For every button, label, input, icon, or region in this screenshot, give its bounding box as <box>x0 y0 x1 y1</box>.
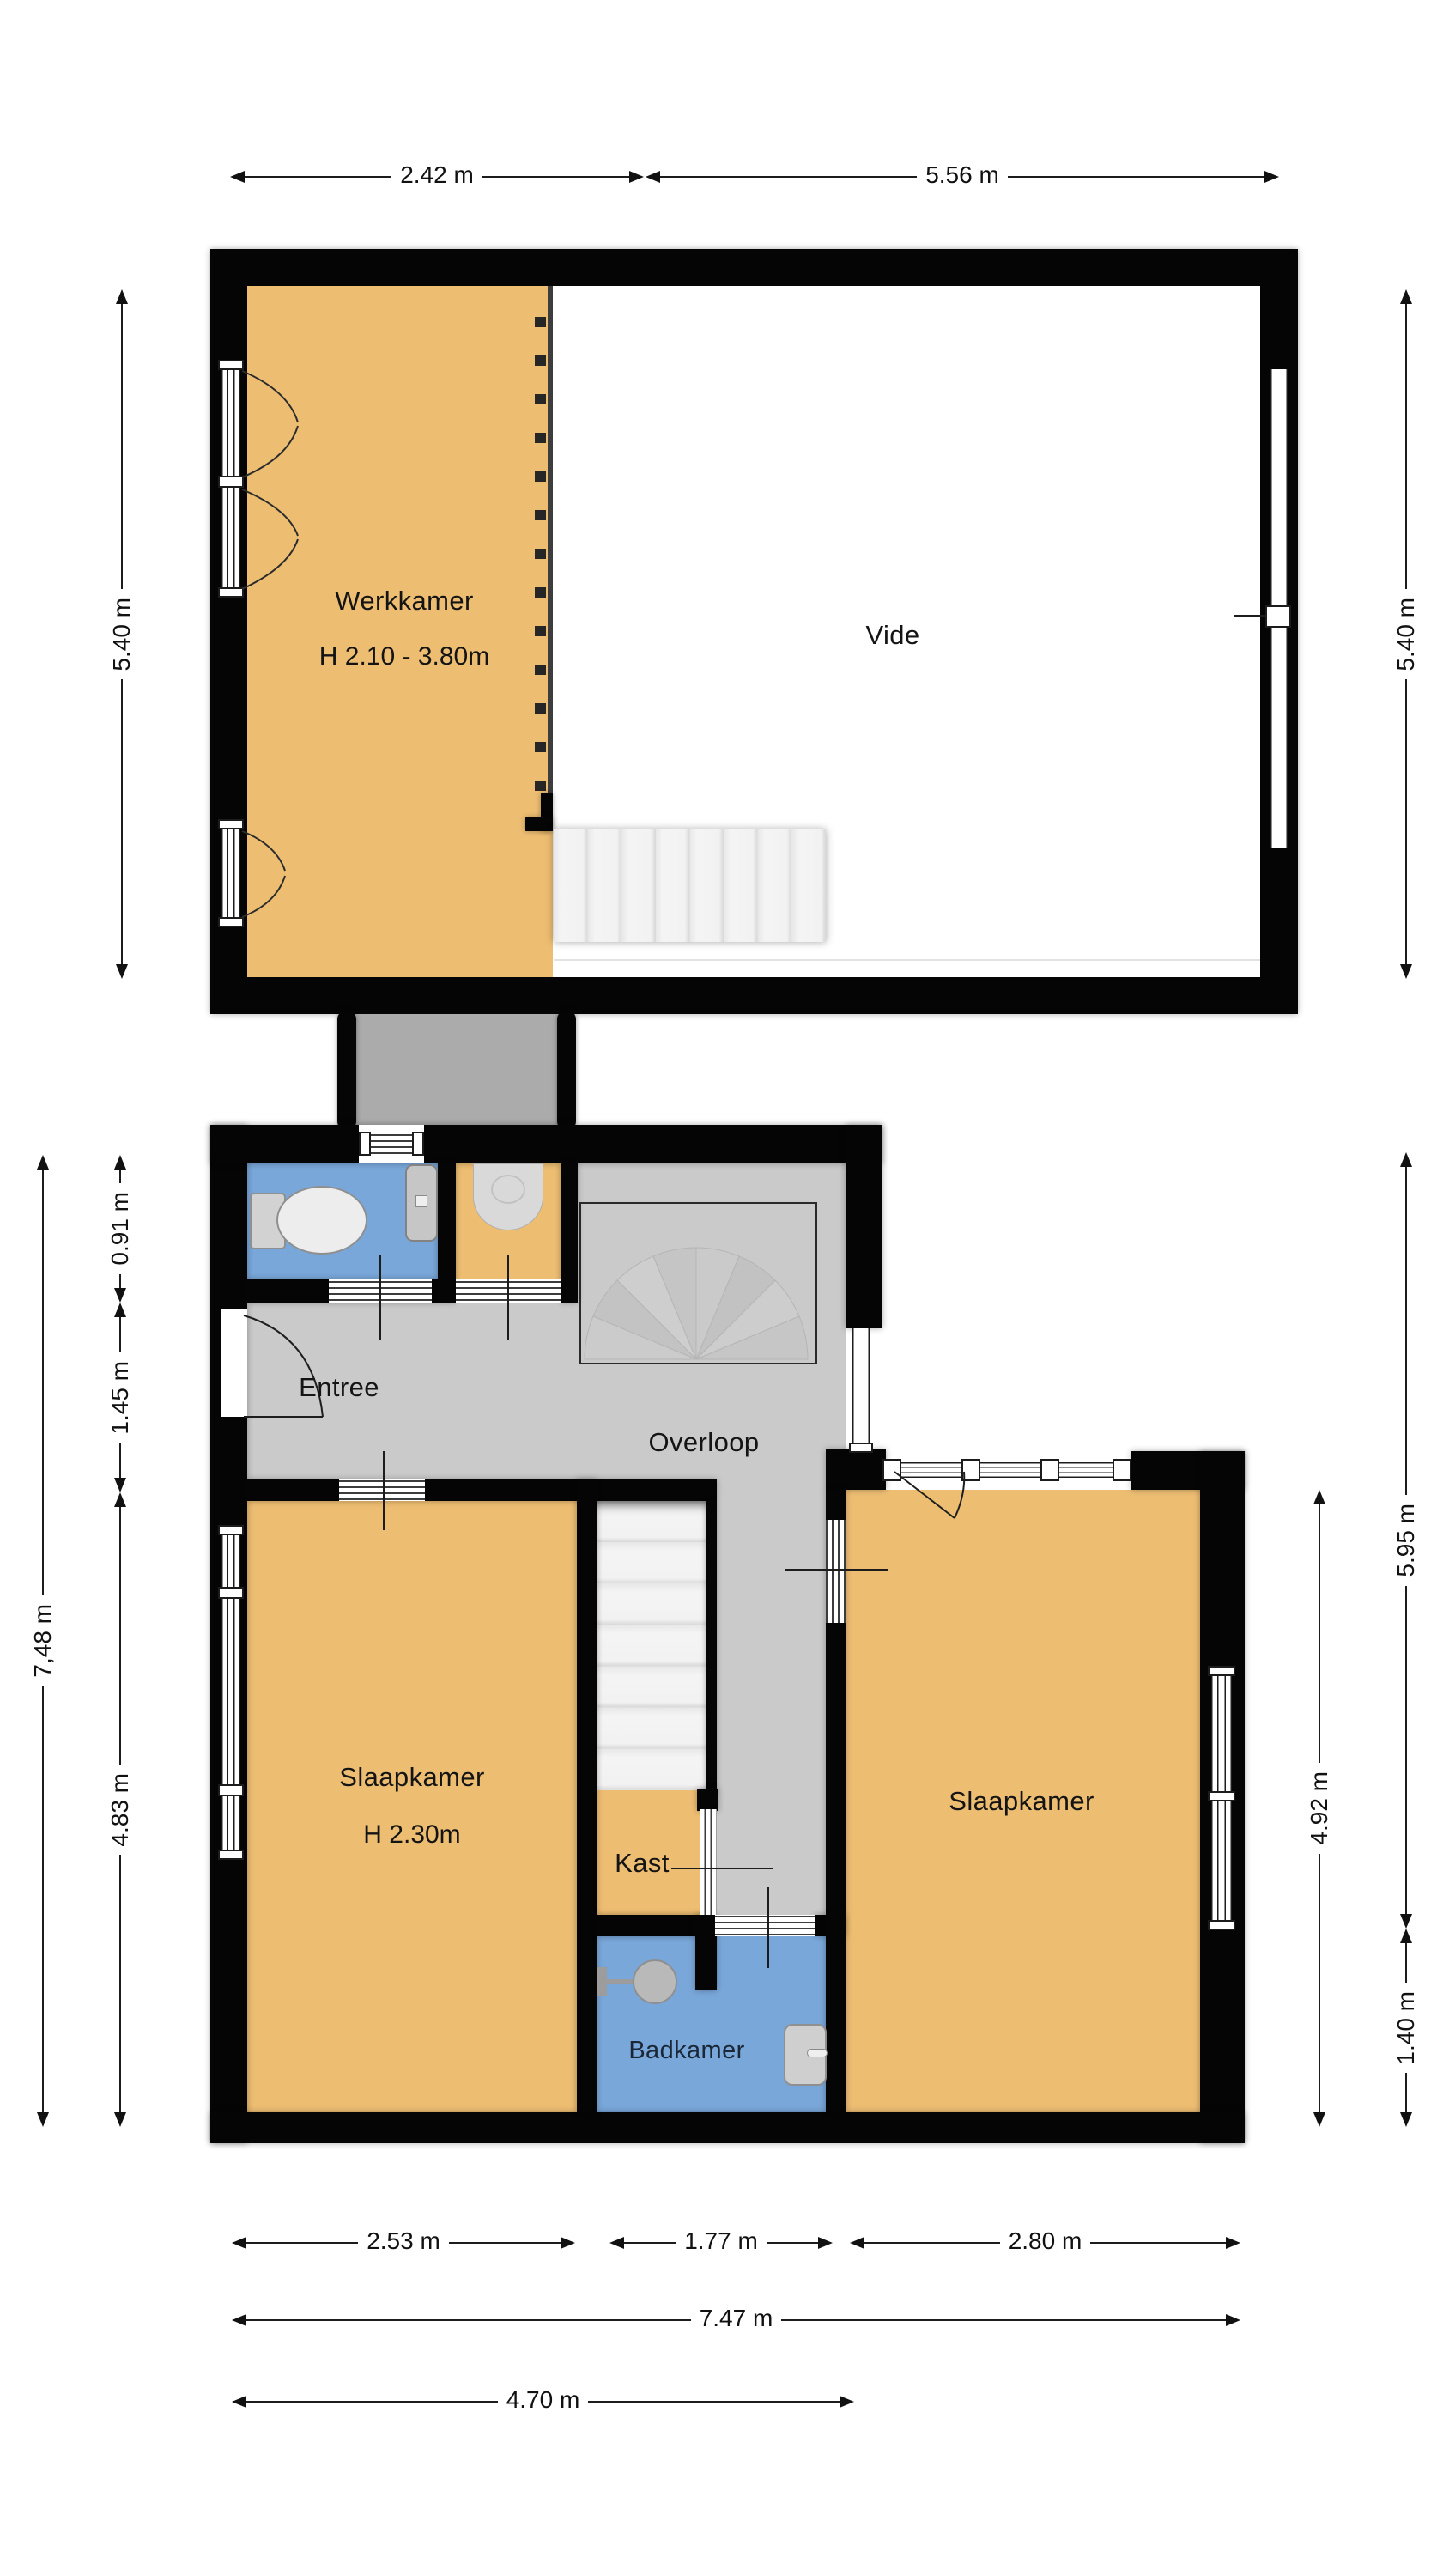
room-label-badkamer: Badkamer <box>567 2037 807 2065</box>
dim-top-left: 2.42 m <box>230 163 644 191</box>
room-height-slaapkamer-left: H 2.30m <box>249 1820 575 1850</box>
plan-linework <box>0 0 1449 2576</box>
dim-gf-right-bottom: 1.40 m <box>1389 1929 1423 2127</box>
room-label-overloop: Overloop <box>549 1427 858 1458</box>
room-label-entree: Entree <box>236 1372 442 1403</box>
dim-gf-left-total: 7,48 m <box>26 1155 60 2127</box>
dim-gf-left-middle: 1.45 m <box>103 1303 137 1492</box>
dim-bottom-left: 2.53 m <box>232 2229 575 2257</box>
dim-bottom-partial: 4.70 m <box>232 2388 854 2415</box>
dim-bottom-right: 2.80 m <box>850 2229 1240 2257</box>
dim-gf-right-inner: 4.92 m <box>1302 1490 1337 2127</box>
dim-gf-left-bottom: 4.83 m <box>103 1492 137 2127</box>
room-label-slaapkamer-right: Slaapkamer <box>858 1786 1185 1817</box>
fan-stairs-icon <box>585 1248 808 1359</box>
dim-bottom-total: 7.47 m <box>232 2306 1240 2334</box>
dim-gf-left-top: 0.91 m <box>103 1155 137 1303</box>
dim-top-right: 5.56 m <box>646 163 1279 191</box>
casement-swing-lines <box>242 371 298 917</box>
floorplan-canvas: Werkkamer H 2.10 - 3.80m Vide <box>0 0 1449 2576</box>
dim-upper-left: 5.40 m <box>105 289 139 979</box>
bedroom-door-swing <box>894 1472 964 1518</box>
dim-gf-right-top: 5.95 m <box>1389 1152 1423 1929</box>
room-label-slaapkamer-left: Slaapkamer <box>249 1762 575 1793</box>
dim-bottom-middle: 1.77 m <box>609 2229 833 2257</box>
room-label-kast: Kast <box>586 1848 698 1879</box>
dim-upper-right: 5.40 m <box>1389 289 1423 979</box>
